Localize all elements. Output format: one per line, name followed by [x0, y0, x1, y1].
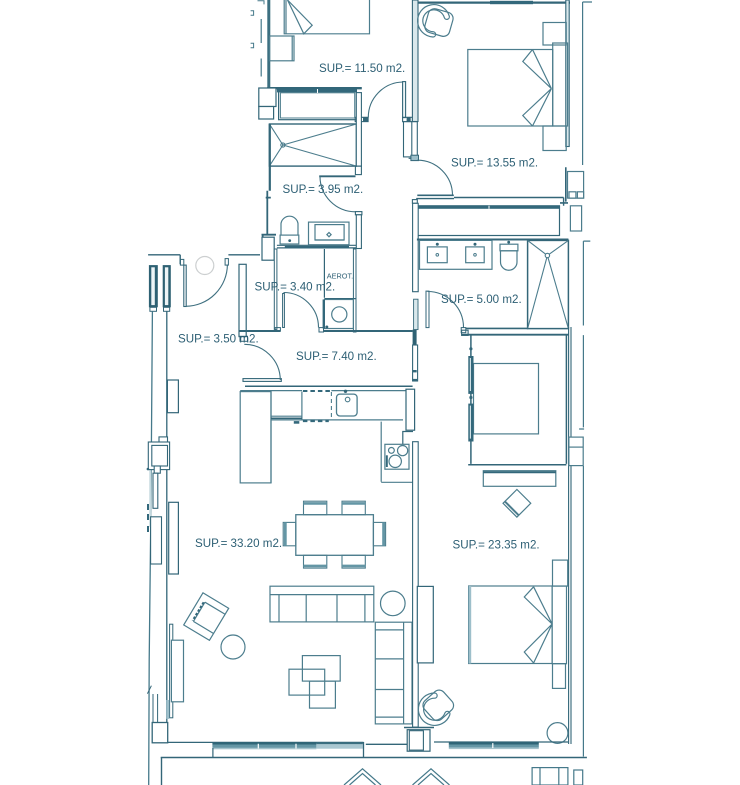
svg-text:SUP.= 23.35 m2.: SUP.= 23.35 m2.	[453, 539, 540, 552]
svg-text:SUP.= 3.95 m2.: SUP.= 3.95 m2.	[283, 183, 364, 196]
svg-text:SUP.= 33.20 m2.: SUP.= 33.20 m2.	[195, 537, 282, 550]
svg-text:SUP.= 11.50 m2.: SUP.= 11.50 m2.	[319, 62, 405, 75]
svg-text:SUP.= 3.50 m2.: SUP.= 3.50 m2.	[178, 333, 259, 346]
svg-text:SUP.= 13.55 m2.: SUP.= 13.55 m2.	[451, 157, 538, 170]
svg-text:SUP.= 7.40 m2.: SUP.= 7.40 m2.	[296, 350, 377, 363]
svg-text:AEROT.: AEROT.	[327, 271, 353, 280]
svg-text:SUP.= 5.00 m2.: SUP.= 5.00 m2.	[441, 293, 522, 306]
svg-text:SUP.= 3.40 m2.: SUP.= 3.40 m2.	[255, 281, 336, 294]
